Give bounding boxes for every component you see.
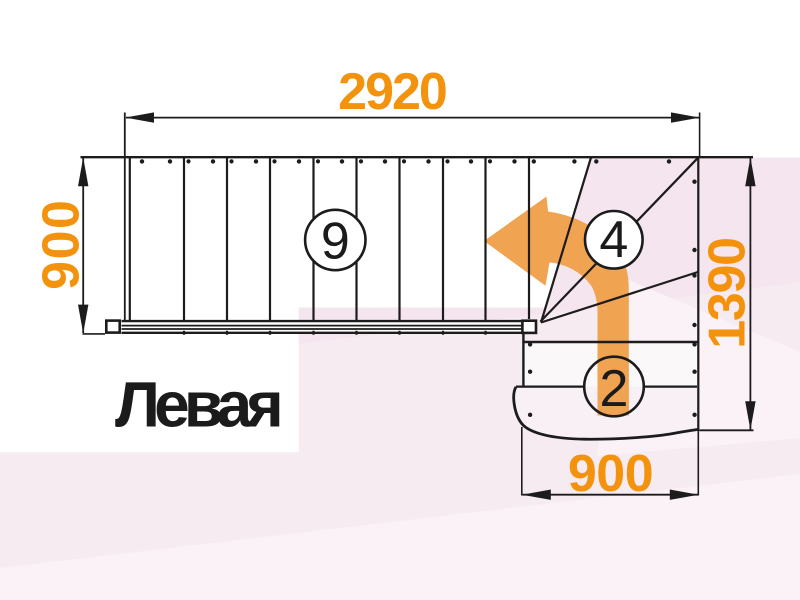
svg-text:9: 9: [321, 212, 350, 270]
svg-text:1390: 1390: [699, 238, 757, 348]
svg-text:2920: 2920: [338, 63, 446, 121]
svg-text:4: 4: [599, 211, 628, 269]
svg-text:Левая: Левая: [115, 369, 279, 441]
svg-text:2: 2: [600, 360, 629, 418]
svg-text:900: 900: [568, 445, 653, 503]
svg-text:900: 900: [32, 199, 90, 290]
